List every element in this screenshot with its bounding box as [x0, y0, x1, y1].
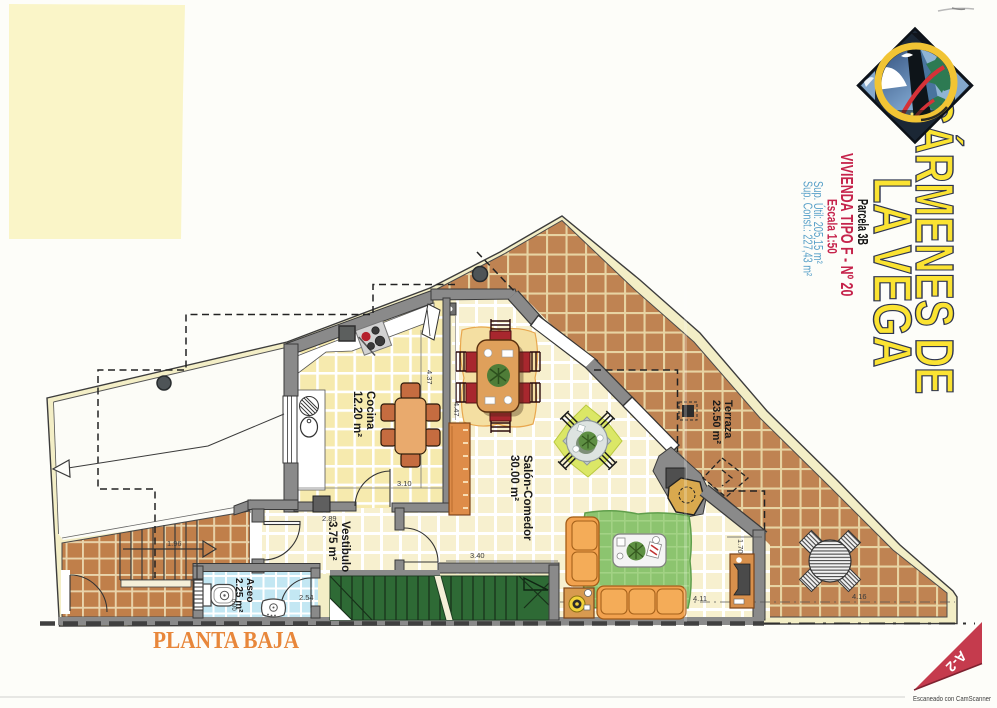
svg-text:1.96: 1.96: [167, 539, 182, 548]
svg-text:3.75 m²: 3.75 m²: [326, 521, 338, 561]
svg-text:2.54: 2.54: [299, 593, 314, 602]
svg-text:Sup. Const.: 227,43 m²: Sup. Const.: 227,43 m²: [800, 181, 814, 276]
svg-text:1.70: 1.70: [736, 539, 745, 554]
svg-text:Terraza: Terraza: [722, 400, 734, 439]
svg-text:Salón-Comedor: Salón-Comedor: [521, 455, 533, 541]
svg-text:4.11: 4.11: [693, 594, 707, 603]
svg-text:4.47: 4.47: [452, 402, 461, 417]
svg-text:23.50 m²: 23.50 m²: [710, 400, 722, 444]
svg-text:Aseo: Aseo: [244, 578, 255, 602]
svg-text:PLANTA BAJA: PLANTA BAJA: [153, 628, 300, 654]
svg-text:2.25 m²: 2.25 m²: [233, 578, 244, 613]
svg-text:4.16: 4.16: [852, 592, 867, 601]
svg-text:Escala 1:50: Escala 1:50: [824, 199, 840, 254]
svg-text:30.00 m²: 30.00 m²: [508, 455, 520, 501]
svg-text:Escaneado con CamScanner: Escaneado con CamScanner: [913, 694, 991, 703]
svg-text:Vestibulo: Vestibulo: [339, 521, 351, 572]
svg-text:4.37: 4.37: [425, 370, 434, 385]
svg-text:3.10: 3.10: [397, 479, 412, 488]
svg-text:12.20 m²: 12.20 m²: [351, 391, 363, 437]
svg-text:3.40: 3.40: [470, 551, 485, 560]
svg-text:Cocina: Cocina: [364, 391, 376, 430]
